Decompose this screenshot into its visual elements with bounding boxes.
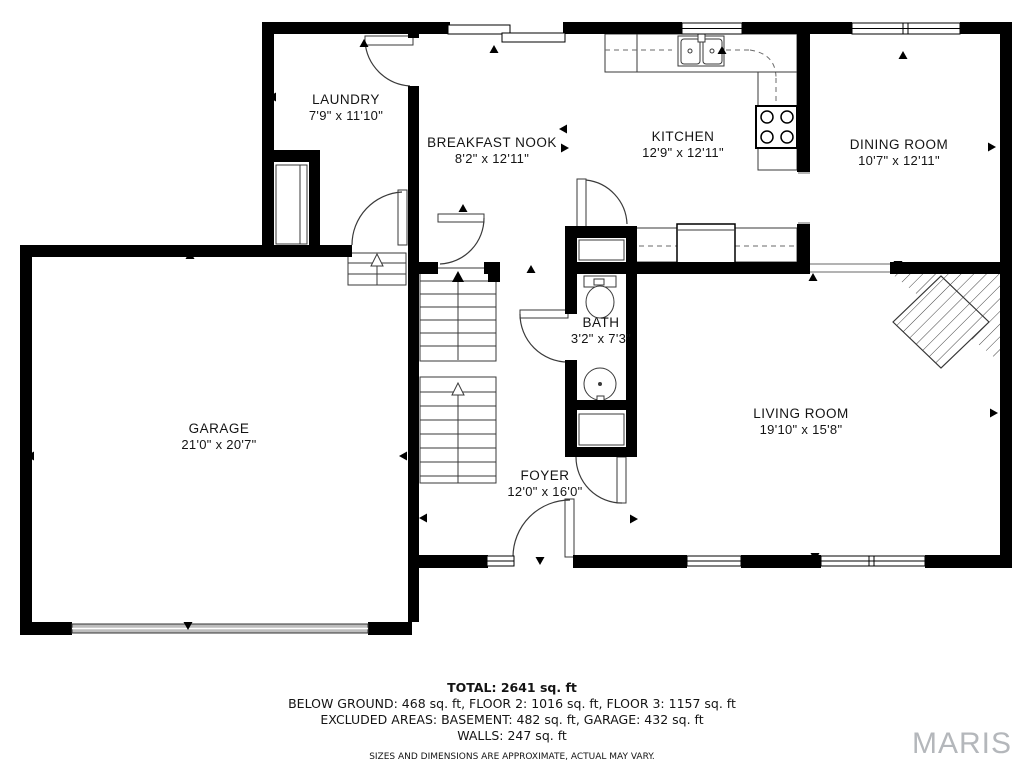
total-area: TOTAL: 2641 sq. ft [0, 680, 1024, 695]
area-summary: TOTAL: 2641 sq. ft BELOW GROUND: 468 sq.… [0, 680, 1024, 762]
room-label-laundry: LAUNDRY 7'9" x 11'10" [309, 92, 383, 124]
room-dims: 12'9" x 12'11" [642, 145, 724, 161]
room-name: BATH [571, 315, 631, 331]
room-label-dining-room: DINING ROOM 10'7" x 12'11" [850, 137, 949, 169]
room-label-bath: BATH 3'2" x 7'3" [571, 315, 631, 347]
camera-markers [26, 39, 998, 630]
room-name: LIVING ROOM [753, 406, 849, 422]
room-dims: 21'0" x 20'7" [181, 437, 256, 453]
room-label-breakfast-nook: BREAKFAST NOOK 8'2" x 12'11" [427, 135, 557, 167]
room-name: GARAGE [181, 421, 256, 437]
room-dims: 10'7" x 12'11" [850, 153, 949, 169]
room-dims: 12'0" x 16'0" [507, 484, 582, 500]
stairs-garage-entry [348, 253, 406, 285]
room-name: KITCHEN [642, 129, 724, 145]
floor-areas: BELOW GROUND: 468 sq. ft, FLOOR 2: 1016 … [0, 696, 1024, 711]
laundry-closet [276, 165, 307, 244]
maris-watermark: MARIS [912, 727, 1012, 761]
room-dims: 7'9" x 11'10" [309, 108, 383, 124]
room-label-kitchen: KITCHEN 12'9" x 12'11" [642, 129, 724, 161]
sliding-door [448, 25, 565, 42]
room-dims: 19'10" x 15'8" [753, 422, 849, 438]
stairs-main [420, 268, 496, 483]
garage-door [72, 624, 368, 633]
walls [20, 22, 1012, 635]
room-label-garage: GARAGE 21'0" x 20'7" [181, 421, 256, 453]
room-name: FOYER [507, 468, 582, 484]
floor-plan-drawing [0, 0, 1024, 768]
room-label-foyer: FOYER 12'0" x 16'0" [507, 468, 582, 500]
room-label-living-room: LIVING ROOM 19'10" x 15'8" [753, 406, 849, 438]
cased-openings [798, 173, 890, 272]
wall-area: WALLS: 247 sq. ft [0, 728, 1024, 743]
room-name: DINING ROOM [850, 137, 949, 153]
floor-plan-page: LAUNDRY 7'9" x 11'10" BREAKFAST NOOK 8'2… [0, 0, 1024, 768]
fireplace [892, 274, 1000, 368]
room-dims: 3'2" x 7'3" [571, 331, 631, 347]
room-name: LAUNDRY [309, 92, 383, 108]
room-dims: 8'2" x 12'11" [427, 151, 557, 167]
disclaimer: SIZES AND DIMENSIONS ARE APPROXIMATE, AC… [0, 752, 1024, 762]
excluded-areas: EXCLUDED AREAS: BASEMENT: 482 sq. ft, GA… [0, 712, 1024, 727]
doors [352, 36, 627, 557]
room-name: BREAKFAST NOOK [427, 135, 557, 151]
